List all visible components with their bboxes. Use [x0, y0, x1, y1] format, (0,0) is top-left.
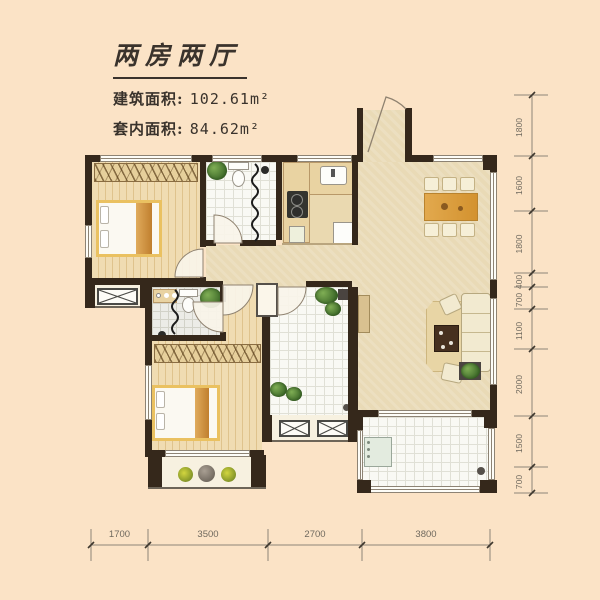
svg-text:2700: 2700 — [304, 529, 325, 540]
window-bedroom2-left — [145, 365, 152, 420]
window-living-right — [490, 298, 497, 385]
wall-b2bay-right — [251, 455, 266, 487]
inner-area-label: 套内面积: — [113, 120, 184, 138]
wall-balcony-se — [480, 480, 497, 493]
wall-bath2-bottom — [152, 335, 222, 341]
wall-hall-bottom-right — [306, 281, 352, 287]
wall-b2bay-left — [148, 455, 162, 487]
wall-bedroom2-bottom-left — [145, 450, 165, 457]
bathroom2-plant-icon — [200, 288, 222, 308]
building-area-label: 建筑面积: — [113, 90, 184, 108]
wall-bath1-bottom-left — [206, 240, 216, 246]
svg-text:2000: 2000 — [514, 375, 524, 394]
dining-chair-1 — [424, 177, 439, 191]
dining-chair-4 — [424, 223, 439, 237]
kitchen-board-icon — [289, 226, 305, 243]
toilet2-tank — [179, 289, 198, 297]
wall-entry-left — [357, 108, 363, 162]
study-bay-glass-icon-2 — [317, 420, 348, 437]
svg-text:1100: 1100 — [514, 322, 524, 341]
stove-burner-icon-1 — [291, 194, 303, 206]
wall-bath2-right-2 — [220, 332, 226, 341]
balcony-drain-icon — [477, 467, 485, 475]
inner-area-value: 84.62m² — [190, 120, 260, 138]
study-bay-glass-icon-1 — [279, 420, 310, 437]
window-bathroom1-top — [212, 155, 262, 162]
svg-text:1800: 1800 — [514, 118, 524, 137]
wall-balcony-nw — [352, 417, 363, 430]
bedroom1-bay-glass-icon — [97, 288, 138, 305]
svg-text:1500: 1500 — [514, 434, 524, 453]
entry-floor — [363, 110, 405, 162]
svg-text:700: 700 — [514, 475, 524, 489]
living-plant-icon — [461, 363, 480, 379]
svg-text:400: 400 — [514, 275, 524, 289]
window-bedroom2-bay — [165, 450, 250, 457]
wall-balcony-sw — [357, 480, 371, 493]
wall-left-1 — [85, 162, 92, 225]
toilet1-bowl-icon — [232, 170, 245, 187]
kitchen-edge-line — [282, 243, 352, 245]
window-dining-top — [433, 155, 483, 162]
plan-title: 两房两厅 — [113, 36, 247, 79]
study-plant-icon-2 — [325, 302, 341, 316]
dining-chair-6 — [460, 223, 475, 237]
living-cabinet — [358, 295, 370, 333]
stove-burner-icon-2 — [291, 206, 303, 218]
bay-plant-icon-1 — [178, 467, 193, 482]
wall-living-bottom-right — [472, 410, 497, 417]
svg-text:1700: 1700 — [109, 529, 130, 540]
wall-entry-right — [405, 108, 412, 162]
coffee-table-decor-icon — [439, 331, 443, 335]
study-plant-icon-4 — [286, 387, 302, 401]
wall-right-1 — [490, 163, 497, 172]
bathroom1-plant-icon — [207, 161, 227, 180]
floorplan-page: 两房两厅 建筑面积: 102.61m² 套内面积: 84.62m² — [0, 0, 600, 600]
dining-table — [424, 193, 478, 221]
wall-right-2 — [490, 280, 497, 298]
svg-text:3800: 3800 — [415, 529, 436, 540]
bedroom1-pillow-2 — [100, 230, 109, 248]
wall-bedroom2-bottom-right — [250, 450, 264, 457]
svg-text:1800: 1800 — [514, 234, 524, 253]
wall-bath1-bottom-right — [240, 240, 276, 246]
bedroom2-pillow-2 — [156, 413, 165, 430]
window-kitchen-top — [297, 155, 352, 162]
window-dining-right — [490, 172, 497, 280]
svg-text:700: 700 — [514, 293, 524, 307]
wall-left-lower-1 — [145, 287, 152, 365]
building-area-row: 建筑面积: 102.61m² — [113, 88, 270, 109]
bedroom1-wardrobe — [94, 163, 198, 182]
toilet1-tank — [228, 162, 249, 170]
toilet2-bowl-icon — [182, 297, 195, 313]
bedroom1-pillow-1 — [100, 206, 109, 224]
dining-chair-5 — [442, 223, 457, 237]
svg-text:3500: 3500 — [197, 529, 218, 540]
study-plant-icon-3 — [270, 382, 287, 397]
dining-table-decor-icon-1 — [441, 203, 448, 210]
building-area-value: 102.61m² — [190, 90, 270, 108]
coffee-table — [434, 325, 459, 352]
wall-bath2-right-1 — [220, 287, 226, 302]
sliding-door-living-balcony — [378, 410, 472, 417]
dining-chair-3 — [460, 177, 475, 191]
window-bedroom1-top — [100, 155, 192, 162]
wall-b1bay-left — [85, 285, 95, 308]
kitchen-faucet-icon — [331, 169, 335, 177]
bedroom1-blanket — [136, 203, 152, 254]
wall-study-living — [348, 287, 358, 415]
dining-chair-2 — [442, 177, 457, 191]
wall-balcony-ne — [484, 417, 497, 428]
dining-table-decor-icon-2 — [458, 206, 463, 211]
window-bedroom1-left — [85, 225, 92, 258]
wall-hall-bottom-left — [145, 281, 223, 287]
wall-midbay-left — [262, 415, 272, 442]
duct-shaft — [256, 283, 278, 317]
living-sofa — [461, 293, 491, 372]
window-balcony-left — [357, 430, 363, 480]
window-balcony-right — [488, 428, 495, 480]
bedroom2-pillow-1 — [156, 391, 165, 408]
inner-area-row: 套内面积: 84.62m² — [113, 118, 270, 139]
bedroom2-blanket — [195, 388, 209, 438]
bay-plant-icon-2 — [221, 467, 236, 482]
wall-entry-corner — [405, 155, 435, 162]
bathroom2-knobs-icon — [156, 293, 161, 298]
bay-ornament-icon — [198, 465, 215, 482]
bedroom2-wardrobe — [154, 344, 261, 363]
wall-kitchen-right — [352, 162, 358, 245]
washer-knobs-icon — [367, 441, 370, 444]
wall-bedroom1-right — [200, 162, 206, 247]
wall-bath1-kitchen — [276, 162, 282, 240]
svg-text:1600: 1600 — [514, 176, 524, 195]
window-balcony-bottom — [370, 486, 480, 493]
title-block: 两房两厅 建筑面积: 102.61m² 套内面积: 84.62m² — [113, 36, 270, 139]
